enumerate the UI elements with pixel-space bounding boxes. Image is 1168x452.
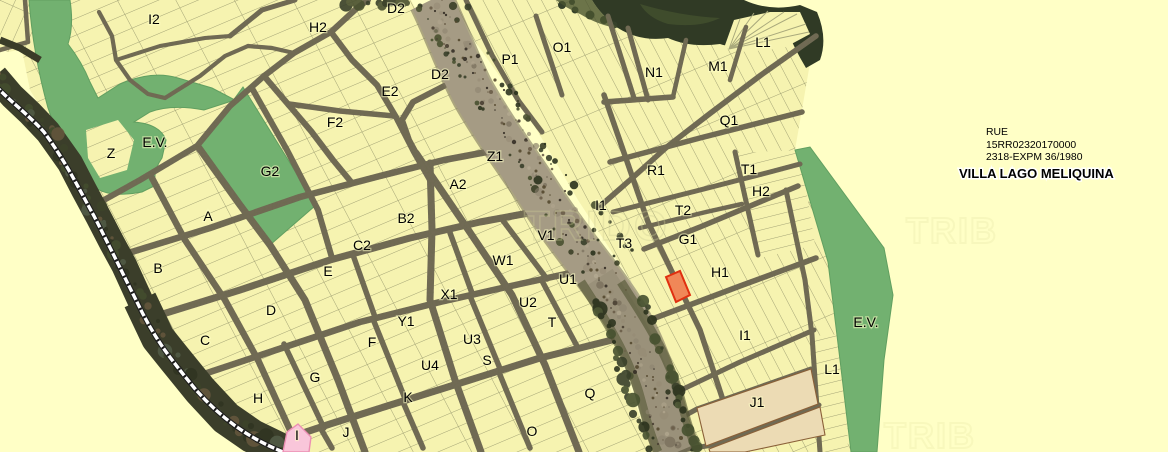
svg-text:D: D <box>266 302 276 318</box>
svg-text:T: T <box>548 314 557 330</box>
svg-text:G1: G1 <box>679 231 698 247</box>
svg-text:D2: D2 <box>387 0 405 16</box>
svg-text:RUE: RUE <box>986 127 1008 138</box>
svg-text:I1: I1 <box>739 327 751 343</box>
svg-text:L1: L1 <box>755 34 771 50</box>
svg-text:I1: I1 <box>595 197 607 213</box>
svg-text:M1: M1 <box>708 58 728 74</box>
svg-text:F: F <box>368 334 377 350</box>
svg-text:T3: T3 <box>616 235 633 251</box>
svg-text:N1: N1 <box>645 64 663 80</box>
svg-text:15RR02320170000: 15RR02320170000 <box>986 140 1076 151</box>
svg-text:Q: Q <box>585 385 596 401</box>
svg-text:B: B <box>153 260 162 276</box>
svg-text:E.V.: E.V. <box>142 134 167 150</box>
svg-text:X1: X1 <box>440 286 457 302</box>
svg-text:TRIB: TRIB <box>906 210 998 251</box>
svg-text:W1: W1 <box>493 252 514 268</box>
svg-text:G2: G2 <box>261 163 280 179</box>
svg-text:C: C <box>200 332 210 348</box>
svg-text:A2: A2 <box>449 176 466 192</box>
svg-text:D2: D2 <box>431 66 449 82</box>
svg-text:E.V.: E.V. <box>853 314 878 330</box>
svg-text:H1: H1 <box>711 264 729 280</box>
svg-text:G: G <box>310 369 321 385</box>
svg-text:A: A <box>203 208 213 224</box>
svg-text:L1: L1 <box>824 361 840 377</box>
svg-text:H2: H2 <box>752 183 770 199</box>
svg-text:B2: B2 <box>397 210 414 226</box>
svg-text:R1: R1 <box>647 162 665 178</box>
svg-text:E2: E2 <box>381 83 398 99</box>
svg-text:Q1: Q1 <box>720 112 739 128</box>
svg-text:Y1: Y1 <box>397 313 414 329</box>
svg-text:T1: T1 <box>741 161 758 177</box>
svg-text:Z1: Z1 <box>487 148 504 164</box>
svg-text:I: I <box>295 427 299 443</box>
svg-text:H2: H2 <box>309 19 327 35</box>
svg-text:T2: T2 <box>675 202 692 218</box>
svg-text:TRIB: TRIB <box>884 415 976 452</box>
svg-text:H: H <box>253 390 263 406</box>
svg-text:Z: Z <box>107 145 116 161</box>
svg-text:P1: P1 <box>501 51 518 67</box>
svg-text:U3: U3 <box>463 331 481 347</box>
svg-text:J: J <box>343 424 350 440</box>
svg-text:O1: O1 <box>553 39 572 55</box>
svg-text:I2: I2 <box>148 11 160 27</box>
svg-text:VILLA LAGO MELIQUINA: VILLA LAGO MELIQUINA <box>959 166 1114 181</box>
svg-text:E: E <box>323 263 332 279</box>
svg-text:2318-EXPM 36/1980: 2318-EXPM 36/1980 <box>986 152 1083 163</box>
svg-text:U4: U4 <box>421 357 439 373</box>
svg-text:C2: C2 <box>353 237 371 253</box>
svg-text:U2: U2 <box>519 294 537 310</box>
svg-text:F2: F2 <box>327 114 344 130</box>
svg-text:O: O <box>527 423 538 439</box>
svg-text:S: S <box>482 352 491 368</box>
svg-text:K: K <box>403 389 413 405</box>
svg-text:J1: J1 <box>750 394 765 410</box>
svg-text:U1: U1 <box>559 271 577 287</box>
svg-text:V1: V1 <box>537 227 554 243</box>
